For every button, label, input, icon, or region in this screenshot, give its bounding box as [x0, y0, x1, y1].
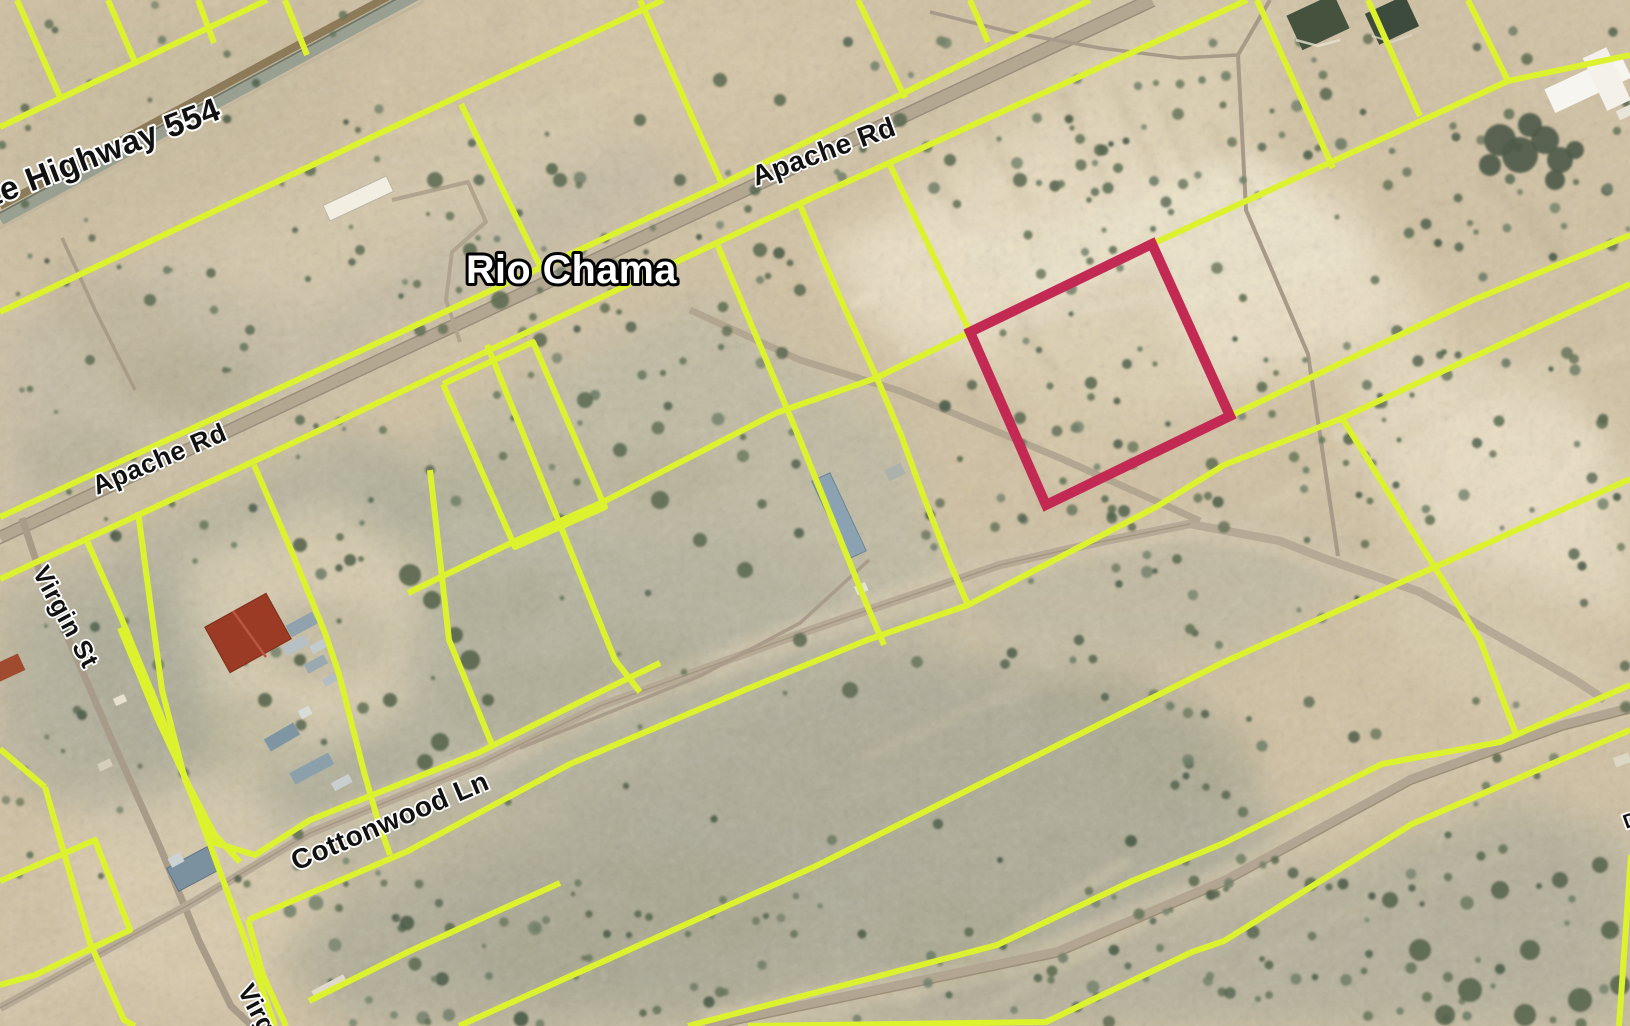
svg-text:Rio Chama: Rio Chama [466, 248, 677, 292]
